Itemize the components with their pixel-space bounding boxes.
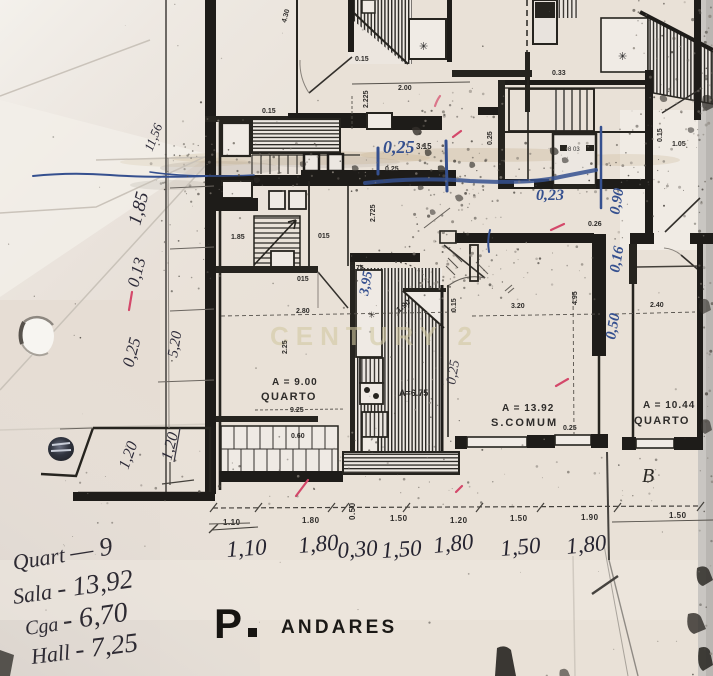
- svg-text:1.20: 1.20: [450, 516, 468, 525]
- svg-text:1.05: 1.05: [672, 141, 686, 148]
- svg-text:✳: ✳: [368, 310, 376, 320]
- svg-text:0.25: 0.25: [487, 131, 494, 145]
- svg-text:0,25: 0,25: [383, 137, 415, 157]
- svg-text:015: 015: [318, 233, 330, 240]
- svg-text:1,80: 1,80: [565, 530, 608, 559]
- svg-text:QUARTO: QUARTO: [261, 391, 317, 403]
- svg-text:S.COMUM: S.COMUM: [491, 417, 558, 429]
- svg-text:0.15: 0.15: [451, 298, 458, 312]
- svg-text:9.25: 9.25: [290, 407, 304, 414]
- svg-text:1.90: 1.90: [581, 513, 599, 522]
- svg-text:P: P: [214, 600, 242, 647]
- svg-text:0.60: 0.60: [291, 433, 305, 440]
- svg-text:0,23: 0,23: [536, 187, 564, 204]
- svg-text:1.10: 1.10: [223, 518, 241, 527]
- svg-text:2.225: 2.225: [363, 90, 370, 108]
- svg-text:8 03: 8 03: [568, 147, 580, 153]
- svg-text:1.50: 1.50: [669, 511, 687, 520]
- svg-text:2.725: 2.725: [370, 204, 377, 222]
- svg-text:1.80: 1.80: [302, 516, 320, 525]
- svg-text:0.50: 0.50: [348, 502, 357, 520]
- svg-text:0.15: 0.15: [262, 108, 276, 115]
- svg-text:0.15: 0.15: [657, 128, 664, 142]
- svg-text:0,30: 0,30: [337, 535, 379, 563]
- svg-text:1,50: 1,50: [381, 535, 423, 563]
- svg-text:✳: ✳: [618, 51, 627, 63]
- svg-text:ANDARES: ANDARES: [281, 617, 397, 638]
- svg-text:1,10: 1,10: [226, 534, 268, 562]
- svg-text:0.25: 0.25: [385, 166, 399, 173]
- svg-text:3.20: 3.20: [511, 303, 525, 310]
- svg-text:A = 13.92: A = 13.92: [502, 403, 554, 414]
- svg-text:1,80: 1,80: [297, 530, 340, 558]
- svg-text:A = 9.00: A = 9.00: [272, 377, 318, 388]
- svg-text:2.00: 2.00: [398, 85, 412, 92]
- svg-text:015: 015: [297, 276, 309, 283]
- svg-text:2.25: 2.25: [282, 340, 289, 354]
- svg-text:0.25: 0.25: [563, 425, 577, 432]
- svg-text:0.15: 0.15: [355, 56, 369, 63]
- svg-text:0.33: 0.33: [552, 70, 566, 77]
- svg-text:CENTURY 2: CENTURY 2: [270, 321, 479, 351]
- svg-text:B: B: [642, 465, 654, 487]
- svg-text:0.26: 0.26: [588, 221, 602, 228]
- svg-text:1,50: 1,50: [499, 533, 542, 561]
- svg-text:2.40: 2.40: [650, 302, 664, 309]
- svg-text:A=6.75: A=6.75: [399, 388, 428, 398]
- svg-text:1,80: 1,80: [432, 529, 475, 558]
- svg-text:QUARTO: QUARTO: [634, 415, 690, 427]
- svg-text:A = 10.44: A = 10.44: [643, 400, 695, 411]
- svg-text:2.80: 2.80: [296, 308, 310, 315]
- svg-text:1.50: 1.50: [390, 514, 408, 523]
- svg-text:1.85: 1.85: [231, 234, 245, 241]
- svg-text:✳: ✳: [419, 41, 428, 53]
- svg-text:1.50: 1.50: [510, 514, 528, 523]
